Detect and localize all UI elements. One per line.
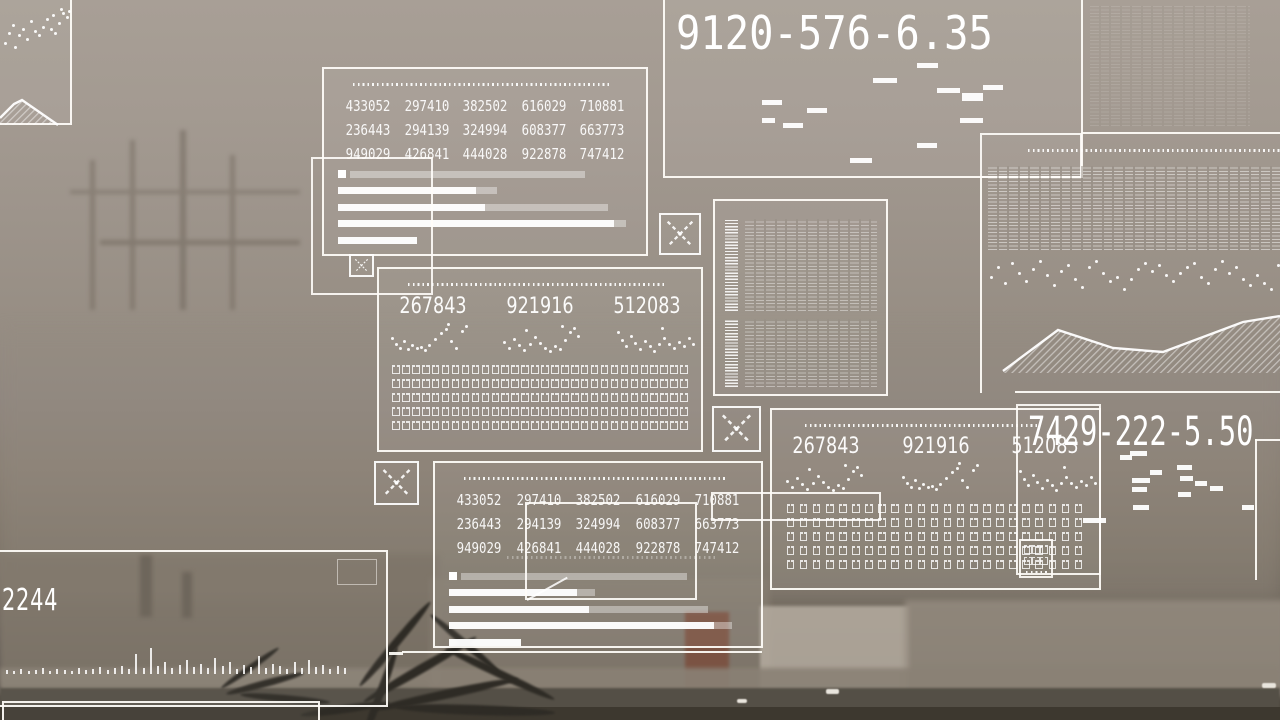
scatter-dot [450,340,453,343]
grid-cell-glyph [492,393,500,402]
histogram-tick [150,648,152,674]
scatter-dot [1039,260,1042,263]
scatter-dot [525,329,528,332]
data-dash [1132,487,1147,492]
grid-cell-glyph [787,546,795,555]
grid-cell-glyph [591,421,599,430]
histogram-tick [258,656,260,674]
grid-cell-glyph [551,393,559,402]
scatter-dot [1032,268,1035,271]
grid-cell-glyph [601,393,609,402]
grid-cell-glyph [813,546,821,555]
bar-lead-square [449,572,457,580]
scatter-dot [621,339,624,342]
scatter-dot [549,350,552,353]
scatter-dot [796,477,799,480]
scatter-dot [447,323,450,326]
scatter-dot [931,485,934,488]
histogram-tick [344,668,346,674]
scatter-dot [1249,284,1252,287]
grid-cell-glyph [996,546,1004,555]
histogram-tick [6,670,8,674]
grid-cell-glyph [891,560,899,569]
data-dash [1177,465,1192,470]
grid-cell-glyph [800,532,808,541]
histogram-tick [294,662,296,674]
table-cell: 382502 [463,97,508,115]
data-dash [1133,505,1149,510]
grid-cell-glyph [918,504,926,513]
histogram-tick [49,671,51,674]
scatter-dot [58,22,61,25]
scatter-dot [683,345,686,348]
grid-cell-glyph [462,365,470,374]
grid-cell-glyph [452,379,460,388]
histogram-tick [315,667,317,674]
scatter-dot [972,469,975,472]
grid-cell-glyph [660,393,668,402]
grid-cell-glyph [452,393,460,402]
grid-cell-glyph [787,532,795,541]
grid-cell-glyph [541,393,549,402]
grid-cell-glyph [891,504,899,513]
histogram-tick [193,667,195,674]
corner-line [1255,439,1257,580]
car [1262,683,1276,688]
building-white [760,606,910,692]
table-cell: 663773 [580,121,625,139]
grid-cell-glyph [402,365,410,374]
scatter-dot [12,24,15,27]
panel-microtext-doc [713,199,888,396]
grid-cell-glyph [660,365,668,374]
scatter-dot [544,347,547,350]
scatter-dot [860,474,863,477]
histogram-tick [179,665,181,674]
grid-cell-glyph [852,504,860,513]
data-dash [937,88,960,93]
histogram-tick [71,671,73,674]
grid-cell-glyph [905,546,913,555]
grid-cell-glyph [452,365,460,374]
data-dash [1132,478,1150,483]
grid-cell-glyph [631,379,639,388]
table-cell: 236443 [346,121,391,139]
histogram-tick [265,668,267,674]
histogram-tick [308,660,310,674]
scatter-dot [961,479,964,482]
histogram-tick [121,666,123,674]
grid-cell-glyph [392,407,400,416]
grid-cell-glyph [865,504,873,513]
microtext-block [988,166,1280,250]
table-cell: 608377 [521,121,566,139]
scatter-dot [644,340,647,343]
histogram-tick [107,670,109,674]
scatter-dot [420,346,423,349]
grid-cell-glyph [670,393,678,402]
grid-cell-glyph [482,407,490,416]
grid-cell-glyph [1032,557,1040,566]
histogram-tick [92,669,94,674]
x-cross-icon [351,256,372,275]
table-cell: 747412 [695,539,740,557]
scatter-dot [844,464,847,467]
scatter-dot [906,482,909,485]
grid-cell-glyph [983,546,991,555]
grid-cell-glyph [442,407,450,416]
grid-cell-glyph [571,393,579,402]
scatter-dot [910,486,913,489]
grid-cell-glyph [680,365,688,374]
grid-cell-glyph [905,504,913,513]
grid-cell-glyph [531,421,539,430]
panel-topleft-chart [0,0,72,125]
grid-cell-glyph [432,407,440,416]
grid-cell-glyph [839,532,847,541]
grid-cell-glyph [813,504,821,513]
grid-cell-glyph [492,379,500,388]
grid-cell-glyph [591,365,599,374]
grid-cell-glyph [944,504,952,513]
divider-line [1082,132,1280,134]
grid-cell-glyph [641,421,649,430]
grid-cell-glyph [482,393,490,402]
grid-cell-glyph [541,365,549,374]
histogram-tick [164,662,166,674]
histogram-tick [35,670,37,674]
scatter-dot [4,42,7,45]
grid-cell-glyph [561,421,569,430]
histogram-tick [157,666,159,674]
scatter-dot [837,484,840,487]
grid-cell-glyph [521,365,529,374]
grid-cell-glyph [826,546,834,555]
number-table: 4330522974103825026160297108812364432941… [324,91,646,163]
histogram-tick [143,668,145,674]
scatter-dot [445,328,448,331]
grid-cell-glyph [442,421,450,430]
scatter-dot [1228,272,1231,275]
grid-cell-glyph [581,421,589,430]
scatter-dot [1256,274,1259,277]
scatter-dot [529,343,532,346]
scatter-dot [26,38,29,41]
scatter-dot [832,489,835,492]
grid-cell-glyph [983,518,991,527]
scatter-dot [518,344,521,347]
grid-cell-glyph [650,421,658,430]
data-dash [1178,492,1191,497]
grid-cell-glyph [852,518,860,527]
scatter-dot [1151,270,1154,273]
grid-cell-glyph [482,421,490,430]
grid-cell-glyph [521,393,529,402]
scatter-dot [1053,284,1056,287]
grid-cell-glyph [826,560,834,569]
scatter-dot [1109,280,1112,283]
grid-cell-glyph [412,421,420,430]
scatter-dot [38,34,41,37]
panel-bottomleft-2 [2,701,320,720]
scatter-dot [411,344,414,347]
grid-cell-glyph [422,407,430,416]
grid-cell-glyph [839,518,847,527]
grid-cell-glyph [611,393,619,402]
grid-cell-glyph [800,560,808,569]
scatter-dot [513,338,516,341]
scatter-dot [559,348,562,351]
grid-cell-glyph [865,518,873,527]
scatter-dot [842,487,845,490]
grid-cell-glyph [482,379,490,388]
data-dash [1195,481,1207,486]
scatter-dot [1088,266,1091,269]
grid-cell-glyph [472,407,480,416]
histogram-tick [229,662,231,674]
histogram-tick [135,654,137,674]
scatter-dot [1095,260,1098,263]
grid-cell-glyph [581,365,589,374]
table-cell: 236443 [457,515,502,533]
scatter-dot [673,347,676,350]
grid-cell-glyph [531,407,539,416]
scatter-dot [407,348,410,351]
histogram-tick [64,670,66,674]
scatter-plot [2,4,70,52]
scatter-dot [391,337,394,340]
grid-cell-glyph [970,546,978,555]
table-cell: 710881 [580,97,625,115]
grid-cell-glyph [787,504,795,513]
scatter-plot [389,321,469,353]
grid-cell-glyph [551,379,559,388]
scatter-dot [1200,276,1203,279]
data-dash [1150,470,1162,475]
histogram-tick [20,669,22,674]
scatter-dot [927,486,930,489]
grid-cell-glyph [680,421,688,430]
scatter-dot [440,332,443,335]
scatter-dot [66,16,69,19]
grid-cell-glyph [650,393,658,402]
scatter-dot [658,343,661,346]
grid-cell-glyph [621,421,629,430]
table-row: 433052297410382502616029710881 [324,97,646,115]
scatter-dot [1186,266,1189,269]
scatter-dot [822,481,825,484]
bar-segment [485,204,608,211]
microtext-block [745,319,877,387]
scatter-dot [68,10,71,13]
crosshair-box [374,461,419,505]
histogram-tick [78,668,80,674]
grid-cell-glyph [561,379,569,388]
grid-cell-glyph [432,393,440,402]
grid-cell-glyph [650,407,658,416]
histogram-tick [286,669,288,674]
scatter-dot [630,335,633,338]
grid-cell-glyph [511,421,519,430]
grid-cell-glyph [839,560,847,569]
scatter-dot [434,338,437,341]
table-cell: 297410 [404,97,449,115]
scatter-plot [900,460,980,492]
grid-cell-glyph [601,407,609,416]
grid-cell-glyph [501,421,509,430]
scatter-dot [958,462,961,465]
dotted-separator [1028,149,1280,152]
progress-bar [449,639,747,646]
grid-cell-glyph [891,546,899,555]
grid-cell-glyph [452,421,460,430]
progress-bar [449,606,747,613]
bar-segment [449,622,714,629]
scatter-dot [577,335,580,338]
microtext-block [745,219,877,311]
grid-cell-glyph [918,560,926,569]
port-crane-silhouette [70,130,310,320]
scatter-dot [1242,278,1245,281]
data-dash [1130,451,1147,456]
x-cross-icon [714,408,759,450]
data-dash [807,108,827,113]
grid-cell-glyph [957,518,965,527]
mini-cell-box [1019,539,1053,578]
crosshair-box [712,406,761,452]
grid-cell-glyph [970,560,978,569]
grid-cell-glyph [905,518,913,527]
grid-cell-glyph [931,560,939,569]
grid-cell-glyph [412,379,420,388]
histogram-tick [214,658,216,674]
grid-cell-glyph [631,365,639,374]
grid-cell-glyph [462,421,470,430]
bar-segment [614,220,626,227]
grid-cell-glyph [402,421,410,430]
x-cross-icon [376,463,417,503]
grid-cell-glyph [957,560,965,569]
grid-cell-glyph [581,393,589,402]
grid-cell-glyph [452,407,460,416]
scatter-dot [62,12,65,15]
scatter-dot [634,342,637,345]
grid-cell-glyph [631,393,639,402]
grid-cell-glyph [1040,557,1048,566]
scatter-dot [554,345,557,348]
grid-cell-glyph [551,421,559,430]
scatter-dot [1214,268,1217,271]
grid-cell-glyph [412,365,420,374]
grid-cell-glyph [660,421,668,430]
stage: 9120-576-6.35 43305229741038250261602971… [0,0,1280,720]
grid-cell-glyph [492,365,500,374]
grid-cell-glyph [561,407,569,416]
grid-cell-glyph [472,379,480,388]
grid-cell-glyph [650,365,658,374]
grid-cell-glyph [800,518,808,527]
grid-cell-glyph [641,393,649,402]
scatter-dot [34,30,37,33]
histogram-tick [200,664,202,674]
scatter-dot [935,488,938,491]
scatter-dot [395,343,398,346]
histogram-tick [236,669,238,674]
histogram-tick [329,669,331,674]
grid-cell-glyph [571,407,579,416]
grid-cell-glyph [905,560,913,569]
scatter-dot [424,349,427,352]
histogram-tick [56,669,58,674]
corner-line [1255,439,1280,441]
grid-cell-glyph [918,546,926,555]
table-cell: 949029 [457,539,502,557]
code-number-top: 9120-576-6.35 [676,10,993,56]
grid-cell-glyph [800,504,808,513]
scatter-dot [403,340,406,343]
scatter-dot [902,476,905,479]
dotted-separator [805,424,1040,427]
dotted-separator [353,83,611,86]
grid-cell-glyph [957,532,965,541]
grid-cell-glyph [432,379,440,388]
grid-cell-glyph [1024,557,1032,566]
grid-cell-glyph [1032,545,1040,554]
scatter-dot [46,18,49,21]
data-dash [983,85,1003,90]
grid-cell-glyph [996,518,1004,527]
scatter-dot [1060,270,1063,273]
grid-cell-glyph [852,560,860,569]
scatter-dot [1179,272,1182,275]
scatter-dot [653,350,656,353]
grid-cell-glyph [641,379,649,388]
scatter-dot [465,325,468,328]
scatter-dot [786,480,789,483]
grid-cell-glyph [422,421,430,430]
scatter-dot [1158,264,1161,267]
grid-cell-glyph [462,407,470,416]
data-dash [1210,486,1223,491]
histogram-tick [279,666,281,674]
scatter-dot [1263,282,1266,285]
data-dash [917,63,938,68]
grid-cell-glyph [878,518,886,527]
bar-segment [714,622,732,629]
scatter-dot [1102,272,1105,275]
grid-cell-glyph [680,379,688,388]
scatter-dot [1116,276,1119,279]
grid-cell-glyph [432,421,440,430]
grid-cell-glyph [944,546,952,555]
scatter-dot [625,345,628,348]
grid-cell-glyph [813,532,821,541]
grid-cell-glyph [839,546,847,555]
scatter-dot [914,479,917,482]
grid-cell-glyph [422,379,430,388]
grid-cell-glyph [392,421,400,430]
grid-cell-glyph [521,407,529,416]
data-dash [850,158,872,163]
data-dash [962,93,983,101]
data-dash [762,100,782,105]
grid-cell-glyph [680,393,688,402]
scatter-dot [461,330,464,333]
scatter-plot [615,321,695,353]
car [737,699,747,703]
scatter-dot [30,20,33,23]
grid-cell-glyph [601,365,609,374]
